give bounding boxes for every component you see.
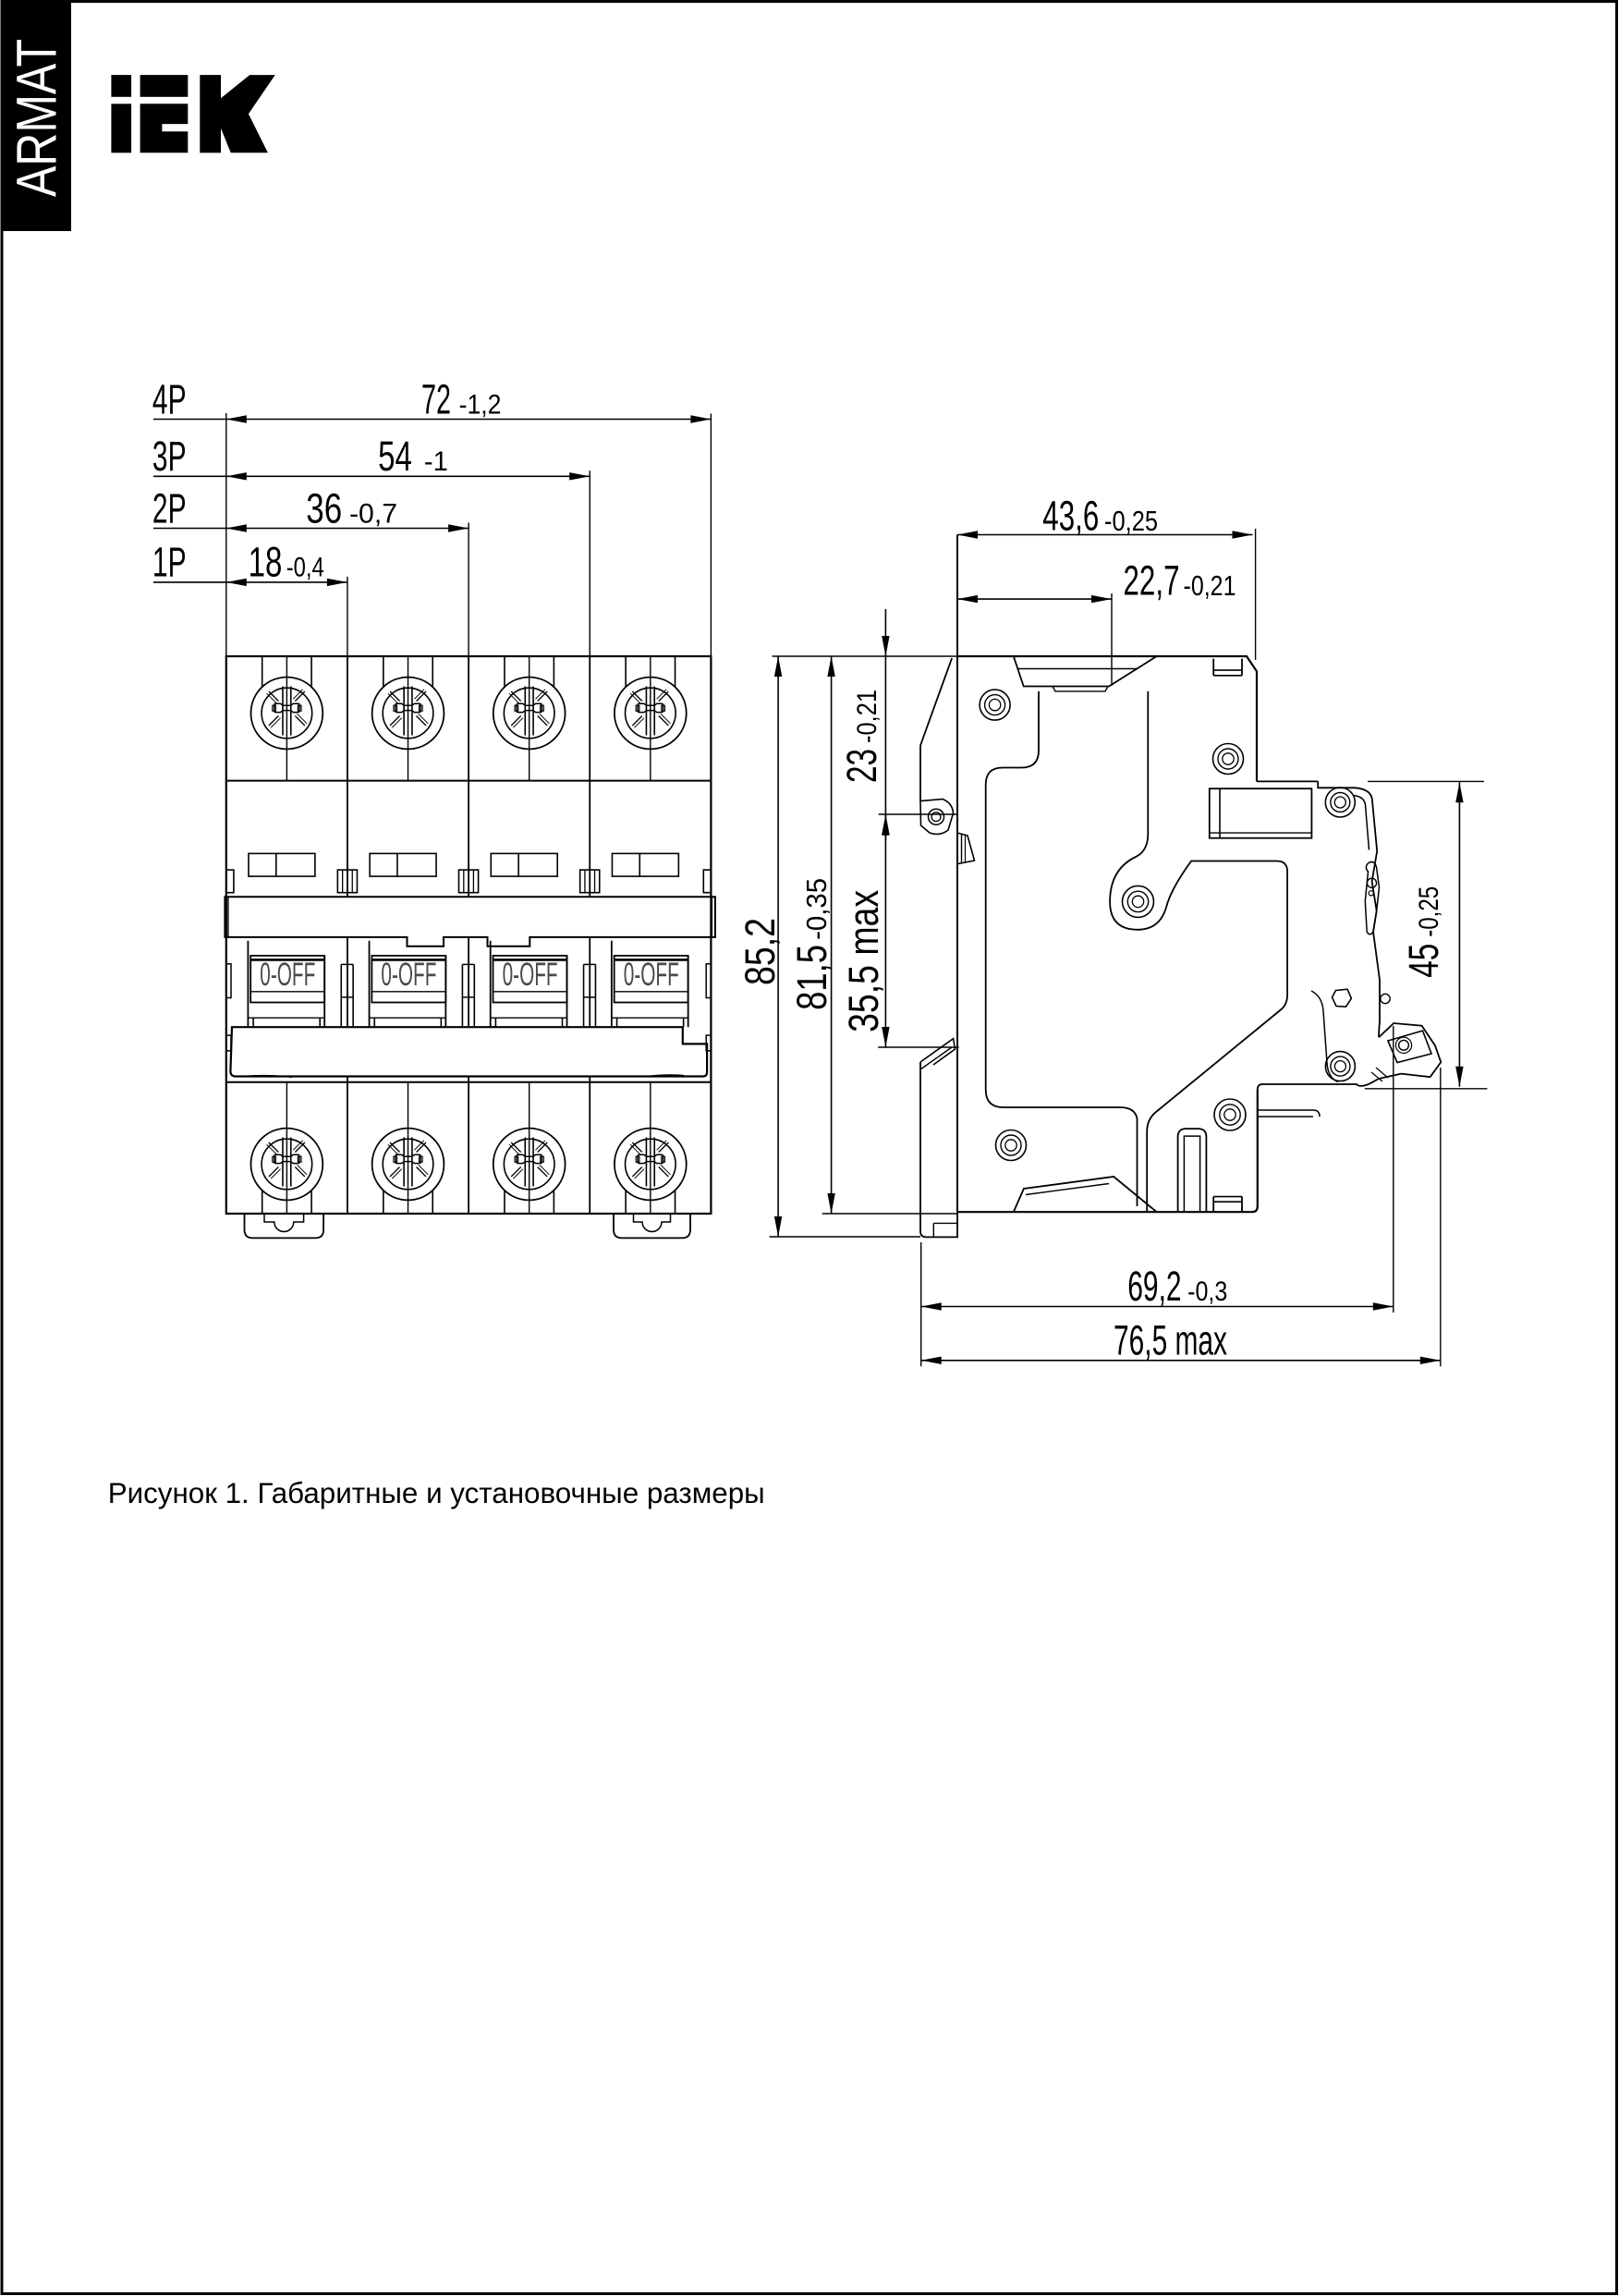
svg-text:0-OFF: 0-OFF: [624, 957, 679, 993]
svg-text:81,5-0,35: 81,5-0,35: [788, 878, 835, 1010]
svg-text:-0,21: -0,21: [1184, 569, 1236, 602]
svg-text:-1: -1: [424, 446, 448, 477]
svg-text:1P: 1P: [152, 539, 187, 586]
svg-text:3P: 3P: [152, 433, 187, 480]
svg-text:0-OFF: 0-OFF: [260, 957, 315, 993]
svg-text:-0,3: -0,3: [1187, 1276, 1227, 1307]
svg-text:54: 54: [378, 433, 412, 480]
svg-text:0-OFF: 0-OFF: [381, 957, 436, 993]
svg-text:-0,7: -0,7: [349, 498, 397, 529]
svg-text:-1,2: -1,2: [459, 389, 502, 420]
svg-text:ARMAT: ARMAT: [6, 39, 68, 197]
svg-text:-0,25: -0,25: [1104, 505, 1158, 537]
svg-text:76,5 max: 76,5 max: [1114, 1316, 1227, 1363]
svg-text:85,2: 85,2: [736, 918, 784, 985]
svg-text:4P: 4P: [152, 375, 187, 422]
svg-text:36: 36: [306, 484, 342, 531]
svg-text:35,5 max: 35,5 max: [840, 889, 887, 1032]
svg-text:43,6: 43,6: [1042, 492, 1099, 539]
svg-text:23-0,21: 23-0,21: [838, 690, 885, 783]
svg-text:69,2: 69,2: [1127, 1263, 1181, 1310]
svg-text:22,7: 22,7: [1124, 557, 1180, 605]
svg-text:18: 18: [249, 539, 283, 586]
svg-text:72: 72: [421, 375, 451, 422]
svg-text:Рисунок 1. Габаритные и устано: Рисунок 1. Габаритные и установочные раз…: [108, 1476, 765, 1509]
svg-text:-0,4: -0,4: [286, 553, 324, 583]
svg-text:45-0,25: 45-0,25: [1400, 886, 1447, 978]
svg-text:0-OFF: 0-OFF: [503, 957, 558, 993]
svg-text:2P: 2P: [152, 484, 187, 531]
